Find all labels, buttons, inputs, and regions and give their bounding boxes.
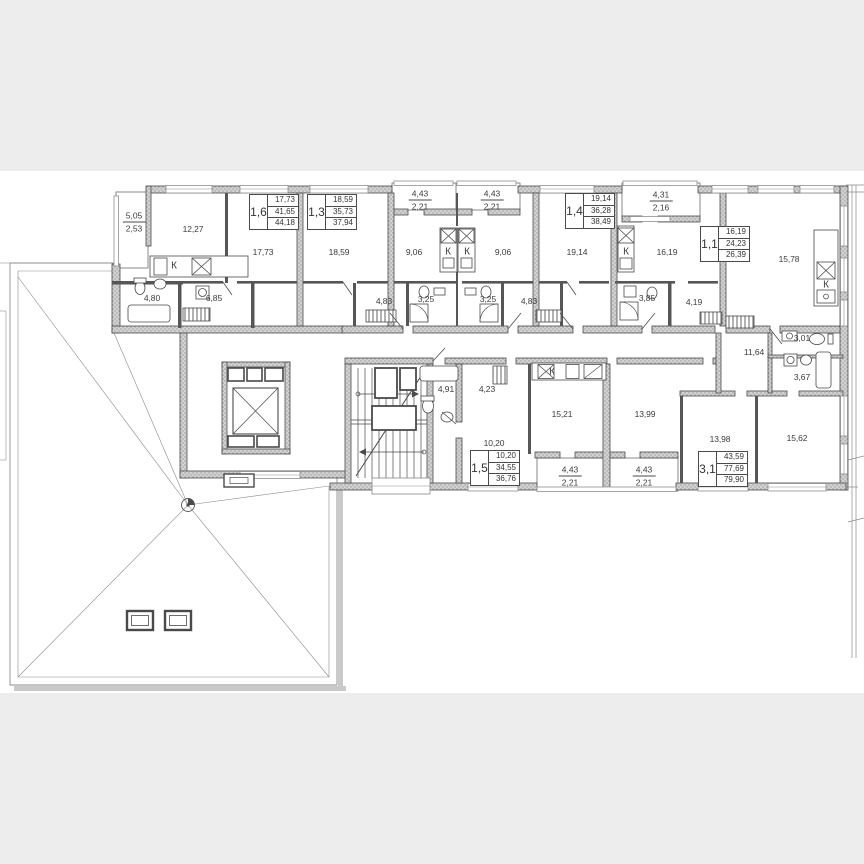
room-area-label: 3,01 [794,333,810,343]
room-area-label: 3,25 [418,294,434,304]
room-area-label: 15,78 [779,254,800,264]
room-area-label: 4,91 [438,384,454,394]
unit-number: 1,3 [308,195,326,229]
unit-total-area: 37,94 [326,218,356,229]
unit-number: 1,4 [566,194,584,228]
unit-table: 1,6 17,73 41,65 44,18 [249,194,299,230]
room-area-label: 4,83 [376,296,392,306]
unit-living-area: 43,59 [717,452,747,464]
unit-total-area: 38,49 [584,217,614,228]
unit-number: 3,1 [699,452,717,486]
room-area-label: 18,59 [329,247,350,257]
unit-area: 34,55 [489,463,519,475]
unit-table: 1,3 18,59 35,73 37,94 [307,194,357,230]
room-area-label: 19,14 [567,247,588,257]
unit-number: 1,6 [250,195,268,229]
kitchen-mark: К [623,247,629,258]
room-area-label: 10,20 [484,438,505,448]
unit-number: 1,5 [471,451,489,485]
balcony-area-label: 4,43 2,21 [559,465,582,488]
unit-area: 41,65 [268,207,298,219]
room-area-label: 13,99 [635,409,656,419]
roof-hatch [127,611,153,630]
axis-lines [846,185,864,658]
room-area-label: 4,80 [144,293,160,303]
unit-living-area: 17,73 [268,195,298,207]
balcony-area-label: 4,43 2,21 [633,465,656,488]
roof-hatch [165,611,191,630]
balcony-area-label: 4,31 2,16 [650,190,673,213]
unit-living-area: 18,59 [326,195,356,207]
balcony-area-label: 4,43 2,21 [409,189,432,212]
floor-plan-page: 12,27 17,73 18,59 9,06 9,06 19,14 16,19 … [0,0,864,864]
balcony-area-label: 4,43 2,21 [481,189,504,212]
room-area-label: 3,67 [794,372,810,382]
unit-table: 1,5 10,20 34,55 36,76 [470,450,520,486]
room-area-label: 9,06 [495,247,511,257]
unit-total-area: 36,76 [489,474,519,485]
balcony-area-label: 5,05 2,53 [123,211,146,234]
kitchen-mark: К [823,280,829,291]
unit-area: 36,28 [584,206,614,218]
room-area-label: 15,21 [552,409,573,419]
room-area-label: 3,25 [480,294,496,304]
unit-area: 77,69 [717,464,747,476]
unit-total-area: 79,90 [717,475,747,486]
room-area-label: 4,23 [479,384,495,394]
room-area-label: 9,06 [406,247,422,257]
room-area-label: 4,19 [686,297,702,307]
unit-number: 1,1 [701,227,719,261]
room-area-label: 11,64 [744,347,764,357]
room-area-label: 6,85 [206,293,222,303]
unit-living-area: 10,20 [489,451,519,463]
room-area-label: 13,98 [710,434,731,444]
kitchen-mark: К [171,261,177,272]
room-area-label: 16,19 [657,247,678,257]
unit-table: 1,1 16,19 24,23 26,39 [700,226,750,262]
kitchen-mark: К [464,247,470,258]
kitchen-mark: К [445,247,451,258]
floor-plan-drawing [0,0,864,864]
room-area-label: 15,62 [787,433,808,443]
unit-area: 35,73 [326,207,356,219]
room-area-label: 12,27 [183,224,204,234]
elevator-car [233,388,278,434]
unit-living-area: 19,14 [584,194,614,206]
unit-living-area: 16,19 [719,227,749,239]
unit-table: 3,1 43,59 77,69 79,90 [698,451,748,487]
room-area-label: 3,85 [639,293,655,303]
unit-table: 1,4 19,14 36,28 38,49 [565,193,615,229]
unit-total-area: 44,18 [268,218,298,229]
room-area-label: 17,73 [253,247,274,257]
unit-area: 24,23 [719,239,749,251]
kitchen-mark: К [549,367,555,378]
room-area-label: 4,83 [521,296,537,306]
unit-total-area: 26,39 [719,250,749,261]
